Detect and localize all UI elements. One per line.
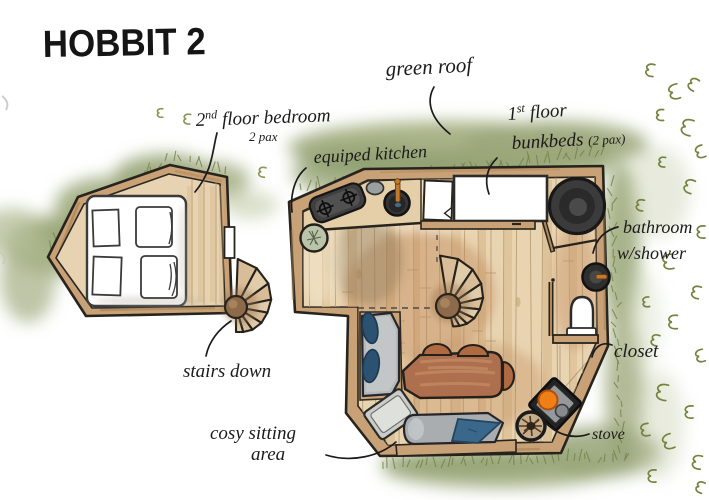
svg-text:1st floor: 1st floor bbox=[507, 98, 568, 125]
svg-text:HOBBIT 2: HOBBIT 2 bbox=[42, 21, 206, 66]
svg-text:closet: closet bbox=[614, 341, 659, 362]
svg-text:w/shower: w/shower bbox=[617, 243, 687, 263]
svg-text:green roof: green roof bbox=[385, 52, 476, 81]
svg-text:stove: stove bbox=[592, 426, 625, 443]
svg-text:stairs down: stairs down bbox=[183, 361, 271, 382]
svg-text:cosy sitting: cosy sitting bbox=[210, 423, 296, 444]
svg-text:2 pax: 2 pax bbox=[249, 129, 278, 144]
svg-text:area: area bbox=[251, 444, 285, 465]
svg-text:bathroom: bathroom bbox=[623, 217, 692, 237]
